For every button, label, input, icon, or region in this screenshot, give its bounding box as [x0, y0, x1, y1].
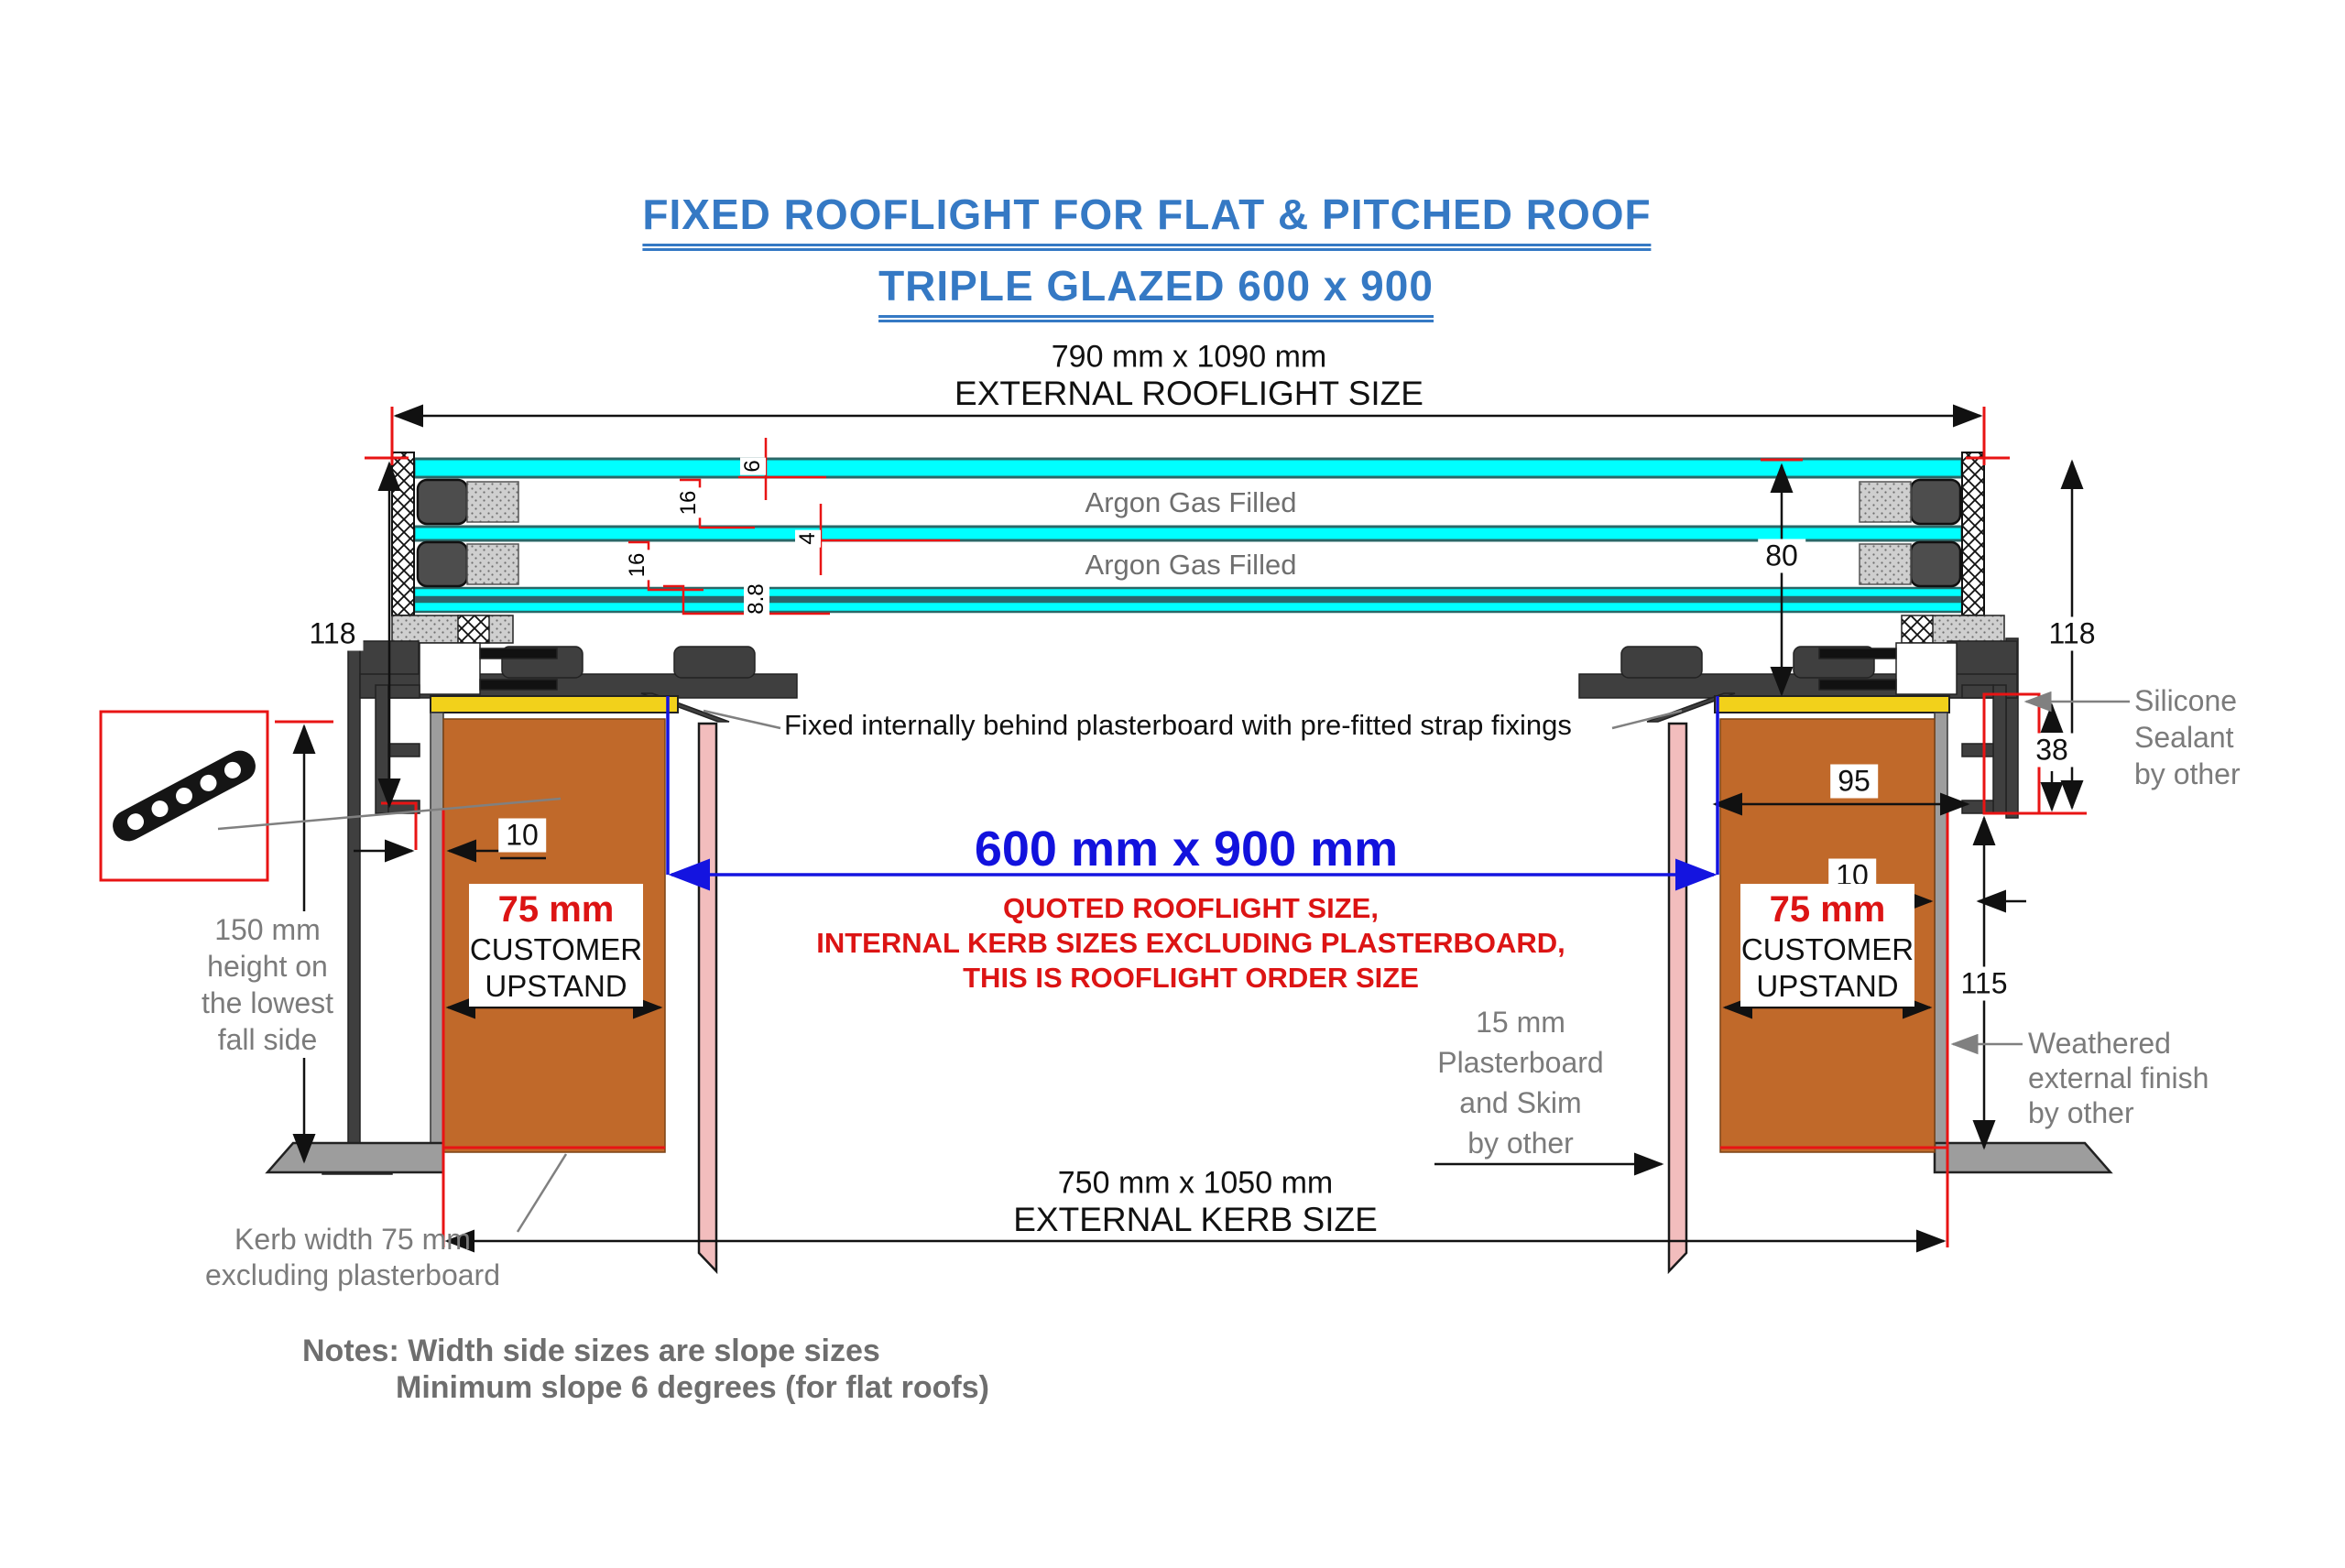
spacer-gasket-left-top — [467, 482, 518, 522]
upstand-line2-left: UPSTAND — [469, 968, 643, 1005]
glass-dim-6: 6 — [740, 457, 766, 474]
spacer-right-bottom — [1911, 542, 1960, 586]
spacer-right-top — [1911, 480, 1960, 524]
argon-label-1: Argon Gas Filled — [1085, 486, 1297, 519]
glazing-unit — [392, 452, 1984, 615]
external-rooflight-label: EXTERNAL ROOFLIGHT SIZE — [954, 375, 1423, 413]
lowest-fall-line2: height on — [202, 948, 333, 985]
weathered-foot-left — [267, 1143, 443, 1172]
upstand-line1-left: CUSTOMER — [469, 931, 643, 968]
notes-line1: Notes: Width side sizes are slope sizes — [302, 1334, 880, 1369]
glass-dim-4: 4 — [795, 529, 821, 547]
frame-bump-right-1 — [1621, 647, 1702, 678]
spacer-gasket-left-bottom — [467, 544, 518, 584]
glazing-gasket-right — [1931, 615, 2004, 643]
upstand-size-right: 75 mm — [1740, 884, 1914, 931]
frame-bump-left-2 — [674, 647, 755, 678]
dim-118-left-label: 118 — [301, 617, 363, 651]
external-rooflight-size: 790 mm x 1090 mm — [1052, 340, 1326, 376]
edge-seal-right — [1962, 452, 1984, 615]
upstand-size-left: 75 mm — [469, 884, 643, 931]
sealant-bed-left — [431, 696, 678, 713]
dim-115-label: 115 — [1953, 967, 2014, 1001]
dim-38-label: 38 — [2028, 734, 2076, 768]
spacer-left-top — [418, 480, 467, 524]
glass-dim-88: 8.8 — [744, 581, 769, 616]
setting-block-right — [1902, 615, 1933, 643]
frame-tbar-right-2 — [1819, 680, 1896, 690]
weathered-line3: by other — [2028, 1095, 2209, 1130]
frame-chamber-right — [1896, 643, 1957, 694]
weathered-line2: external finish — [2028, 1061, 2209, 1095]
spacer-gasket-right-bottom — [1860, 544, 1911, 584]
frame-chamber-left — [420, 643, 480, 694]
weathered-foot-right — [1935, 1143, 2110, 1172]
dim-10-left-label: 10 — [498, 819, 546, 853]
clip-right-tab-3 — [1962, 800, 1993, 813]
plasterboard-left — [699, 724, 716, 1271]
rooflight-section-drawing: FIXED ROOFLIGHT FOR FLAT & PITCHED ROOF … — [0, 0, 2345, 1568]
quoted-note-2: INTERNAL KERB SIZES EXCLUDING PLASTERBOA… — [816, 927, 1565, 960]
upstand-line2-right: UPSTAND — [1740, 968, 1914, 1005]
title-line1-text: FIXED ROOFLIGHT FOR FLAT & PITCHED ROOF — [642, 191, 1651, 251]
glazing-gasket-left — [392, 615, 513, 643]
frame-tbar-left-1 — [480, 648, 557, 659]
quoted-note-3: THIS IS ROOFLIGHT ORDER SIZE — [963, 962, 1419, 995]
weathered-note: Weathered external finish by other — [2028, 1026, 2209, 1130]
lowest-fall-note: 150 mm height on the lowest fall side — [202, 911, 333, 1058]
drawing-title-line2: TRIPLE GLAZED 600 x 900 — [878, 261, 1434, 310]
argon-label-2: Argon Gas Filled — [1085, 549, 1297, 582]
plasterboard-note: 15 mm Plasterboard and Skim by other — [1437, 1002, 1603, 1163]
spacer-left-bottom — [418, 542, 467, 586]
lowest-fall-line1: 150 mm — [202, 911, 333, 948]
strap-fixing-note: Fixed internally behind plasterboard wit… — [784, 709, 1572, 742]
upstand-label-left: 75 mm CUSTOMER UPSTAND — [469, 884, 643, 1007]
kerb-width-note: Kerb width 75 mm excluding plasterboard — [205, 1222, 500, 1293]
glass-pane-inner-a — [414, 588, 1962, 597]
weathered-finish-left — [431, 713, 443, 1145]
plasterboard-line3: and Skim — [1437, 1083, 1603, 1123]
frame-leg-left — [348, 641, 360, 1154]
frame-tbar-left-2 — [480, 680, 557, 690]
glass-dim-16a: 16 — [676, 488, 702, 518]
edge-seal-left — [392, 452, 414, 615]
glass-pane-middle — [414, 527, 1962, 540]
lowest-fall-line4: fall side — [202, 1021, 333, 1058]
weathered-line1: Weathered — [2028, 1026, 2209, 1061]
glass-dim-16b: 16 — [625, 550, 650, 581]
plasterboard-line4: by other — [1437, 1123, 1603, 1163]
clip-right-tab-2 — [1962, 744, 1993, 757]
external-kerb-size: 750 mm x 1050 mm — [1058, 1166, 1333, 1202]
clip-left-tab-2 — [388, 744, 420, 757]
silicone-note: Silicone Sealant by other — [2134, 682, 2241, 792]
sealant-bed-right — [1715, 696, 1949, 713]
kerb-width-line2: excluding plasterboard — [205, 1258, 500, 1293]
silicone-line3: by other — [2134, 756, 2241, 792]
dim-118-right-label: 118 — [2041, 617, 2102, 651]
frame-tbar-right-1 — [1819, 648, 1896, 659]
plasterboard-line1: 15 mm — [1437, 1002, 1603, 1042]
kerb-width-line1: Kerb width 75 mm — [205, 1222, 500, 1258]
kerb-width-leader — [518, 1154, 566, 1232]
notes-line2: Minimum slope 6 degrees (for flat roofs) — [396, 1370, 989, 1406]
quoted-note-1: QUOTED ROOFLIGHT SIZE, — [1003, 892, 1379, 925]
lowest-fall-line3: the lowest — [202, 985, 333, 1021]
dim-80-label: 80 — [1758, 539, 1805, 573]
weathered-finish-right — [1935, 713, 1947, 1145]
title-line2-text: TRIPLE GLAZED 600 x 900 — [878, 262, 1434, 322]
plasterboard-right — [1669, 724, 1686, 1271]
plasterboard-line2: Plasterboard — [1437, 1042, 1603, 1083]
clip-right — [1993, 685, 2006, 813]
silicone-line2: Sealant — [2134, 719, 2241, 756]
glass-pane-outer — [414, 459, 1962, 477]
setting-block-left — [458, 615, 489, 643]
upstand-line1-right: CUSTOMER — [1740, 931, 1914, 968]
dim-95-label: 95 — [1830, 765, 1878, 799]
external-kerb-label: EXTERNAL KERB SIZE — [1013, 1201, 1378, 1239]
clip-left — [376, 685, 388, 813]
silicone-line1: Silicone — [2134, 682, 2241, 719]
spacer-gasket-right-top — [1860, 482, 1911, 522]
glass-pane-inner-b — [414, 602, 1962, 612]
clip-left-tab-1 — [388, 685, 420, 698]
drawing-title-line1: FIXED ROOFLIGHT FOR FLAT & PITCHED ROOF — [642, 190, 1651, 239]
clip-right-tab-1 — [1962, 685, 1993, 698]
upstand-label-right: 75 mm CUSTOMER UPSTAND — [1740, 884, 1914, 1007]
quoted-size-text: 600 mm x 900 mm — [975, 821, 1398, 877]
